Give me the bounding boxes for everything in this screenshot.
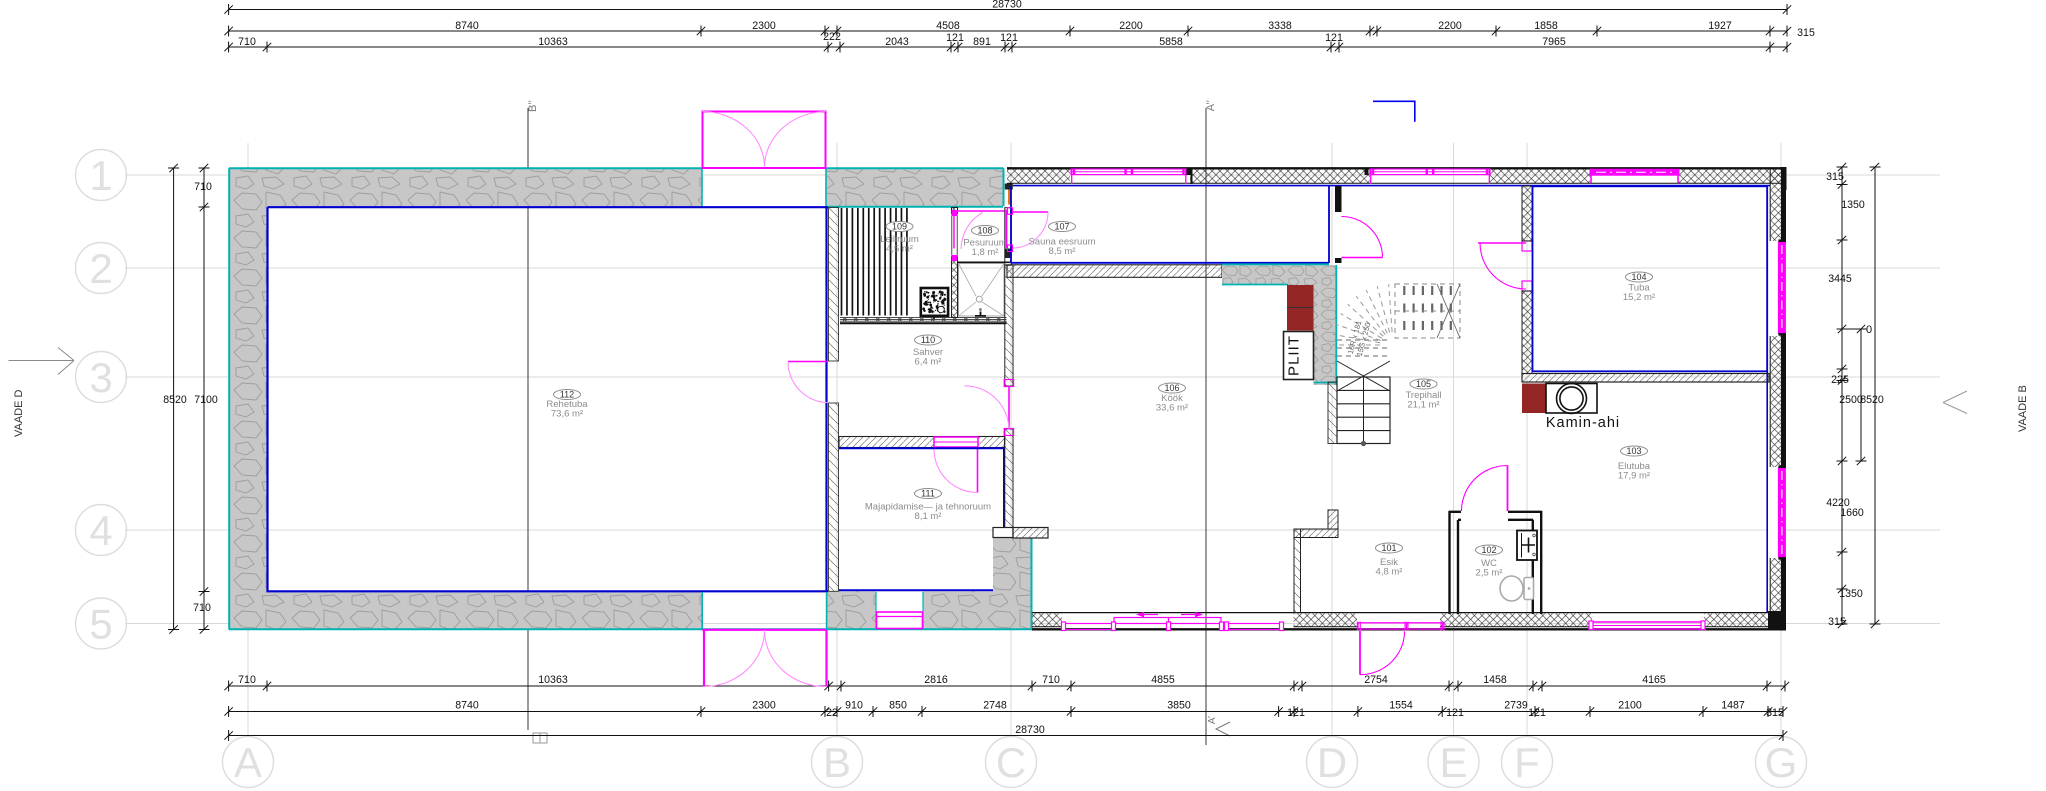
svg-text:315: 315 bbox=[1826, 171, 1844, 183]
svg-text:8,5 m²: 8,5 m² bbox=[1049, 246, 1076, 257]
svg-text:15,2 m²: 15,2 m² bbox=[1623, 292, 1655, 303]
svg-text:2739: 2739 bbox=[1504, 700, 1528, 712]
svg-text:2300: 2300 bbox=[752, 20, 776, 32]
svg-text:101: 101 bbox=[1381, 543, 1396, 553]
svg-text:7100: 7100 bbox=[194, 394, 218, 406]
svg-text:10363: 10363 bbox=[538, 674, 568, 686]
svg-text:8520: 8520 bbox=[163, 394, 187, 406]
svg-text:F: F bbox=[1514, 739, 1540, 786]
svg-text:102: 102 bbox=[1481, 545, 1496, 555]
svg-text:2754: 2754 bbox=[1364, 674, 1388, 686]
svg-text:2200: 2200 bbox=[1119, 20, 1143, 32]
svg-text:103: 103 bbox=[1626, 446, 1641, 456]
svg-text:107: 107 bbox=[1054, 222, 1069, 232]
svg-text:106: 106 bbox=[1164, 383, 1179, 393]
svg-text:33,6 m²: 33,6 m² bbox=[1156, 403, 1188, 414]
svg-text:315: 315 bbox=[1766, 707, 1784, 719]
svg-text:4,8 m²: 4,8 m² bbox=[1376, 567, 1403, 578]
svg-text:17,9 m²: 17,9 m² bbox=[1618, 471, 1650, 482]
svg-text:5: 5 bbox=[89, 601, 112, 648]
svg-text:225: 225 bbox=[1831, 374, 1849, 386]
svg-text:VAADE D: VAADE D bbox=[13, 389, 25, 437]
svg-text:28730: 28730 bbox=[1015, 724, 1045, 736]
svg-text:73,6 m²: 73,6 m² bbox=[551, 409, 583, 420]
svg-text:910: 910 bbox=[845, 700, 863, 712]
svg-text:121: 121 bbox=[946, 32, 964, 44]
svg-text:2: 2 bbox=[89, 245, 112, 292]
svg-text:850: 850 bbox=[889, 700, 907, 712]
svg-text:3850: 3850 bbox=[1167, 700, 1191, 712]
svg-text:B: B bbox=[823, 739, 851, 786]
svg-text:1554: 1554 bbox=[1389, 700, 1413, 712]
svg-text:VAADE B: VAADE B bbox=[2017, 385, 2029, 432]
svg-text:1858: 1858 bbox=[1534, 20, 1558, 32]
svg-text:104: 104 bbox=[1631, 272, 1646, 282]
svg-text:2,5 m²: 2,5 m² bbox=[1476, 568, 1503, 579]
svg-text:3445: 3445 bbox=[1828, 273, 1852, 285]
svg-text:111: 111 bbox=[921, 489, 935, 499]
svg-text:2300: 2300 bbox=[752, 700, 776, 712]
svg-text:D: D bbox=[1317, 739, 1347, 786]
svg-text:105: 105 bbox=[1416, 379, 1431, 389]
svg-text:222: 222 bbox=[823, 31, 841, 43]
svg-text:1927: 1927 bbox=[1708, 20, 1732, 32]
svg-text:121: 121 bbox=[1325, 32, 1343, 44]
svg-text:E: E bbox=[1439, 739, 1467, 786]
svg-text:3: 3 bbox=[89, 354, 112, 401]
svg-text:710: 710 bbox=[194, 181, 212, 193]
svg-text:1487: 1487 bbox=[1721, 700, 1745, 712]
svg-text:710: 710 bbox=[193, 602, 211, 614]
svg-text:710: 710 bbox=[238, 36, 256, 48]
svg-text:1660: 1660 bbox=[1840, 507, 1864, 519]
svg-text:2043: 2043 bbox=[885, 36, 909, 48]
svg-text:8520: 8520 bbox=[1860, 394, 1884, 406]
svg-text:108: 108 bbox=[977, 226, 992, 236]
svg-text:PLIIT: PLIIT bbox=[1286, 335, 1303, 376]
svg-text:Kamin-ahi: Kamin-ahi bbox=[1546, 415, 1620, 431]
svg-text:C: C bbox=[996, 739, 1026, 786]
svg-text:891: 891 bbox=[973, 36, 991, 48]
svg-text:710: 710 bbox=[238, 674, 256, 686]
svg-text:28730: 28730 bbox=[992, 0, 1022, 11]
svg-text:G: G bbox=[1765, 739, 1798, 786]
svg-text:1458: 1458 bbox=[1483, 674, 1507, 686]
svg-text:4855: 4855 bbox=[1151, 674, 1175, 686]
svg-text:4: 4 bbox=[89, 507, 112, 554]
svg-text:5858: 5858 bbox=[1159, 36, 1183, 48]
svg-text:A’: A’ bbox=[1207, 716, 1218, 724]
svg-text:0: 0 bbox=[1866, 324, 1872, 336]
svg-text:7965: 7965 bbox=[1542, 36, 1566, 48]
svg-text:22: 22 bbox=[826, 707, 838, 719]
svg-text:121: 121 bbox=[1446, 707, 1464, 719]
svg-text:112: 112 bbox=[560, 390, 574, 400]
svg-text:121: 121 bbox=[1528, 707, 1546, 719]
svg-text:110: 110 bbox=[921, 335, 935, 345]
svg-text:315: 315 bbox=[1797, 27, 1815, 39]
svg-text:3338: 3338 bbox=[1268, 20, 1292, 32]
svg-text:21,1 m²: 21,1 m² bbox=[1407, 400, 1439, 411]
svg-text:710: 710 bbox=[1042, 674, 1060, 686]
svg-text:4,5 m²: 4,5 m² bbox=[886, 244, 913, 255]
svg-text:6,4 m²: 6,4 m² bbox=[915, 357, 942, 368]
svg-text:2100: 2100 bbox=[1618, 700, 1642, 712]
svg-text:2816: 2816 bbox=[924, 674, 948, 686]
svg-text:1350: 1350 bbox=[1841, 199, 1865, 211]
svg-text:8,1 m²: 8,1 m² bbox=[915, 511, 942, 522]
svg-text:4508: 4508 bbox=[936, 20, 960, 32]
svg-text:8740: 8740 bbox=[455, 700, 479, 712]
svg-text:A’’: A’’ bbox=[1205, 100, 1217, 111]
svg-text:315: 315 bbox=[1828, 616, 1846, 628]
svg-text:4165: 4165 bbox=[1642, 674, 1666, 686]
svg-text:1350: 1350 bbox=[1839, 588, 1863, 600]
svg-text:10363: 10363 bbox=[538, 36, 568, 48]
svg-text:1: 1 bbox=[89, 152, 112, 199]
svg-text:B’’: B’’ bbox=[527, 100, 539, 112]
svg-text:121: 121 bbox=[1000, 32, 1018, 44]
svg-text:2748: 2748 bbox=[983, 700, 1007, 712]
svg-text:8740: 8740 bbox=[455, 20, 479, 32]
svg-text:A: A bbox=[234, 739, 262, 786]
svg-text:121: 121 bbox=[1287, 707, 1305, 719]
svg-text:109: 109 bbox=[892, 222, 907, 232]
svg-text:2200: 2200 bbox=[1438, 20, 1462, 32]
svg-text:1,8 m²: 1,8 m² bbox=[972, 247, 999, 258]
